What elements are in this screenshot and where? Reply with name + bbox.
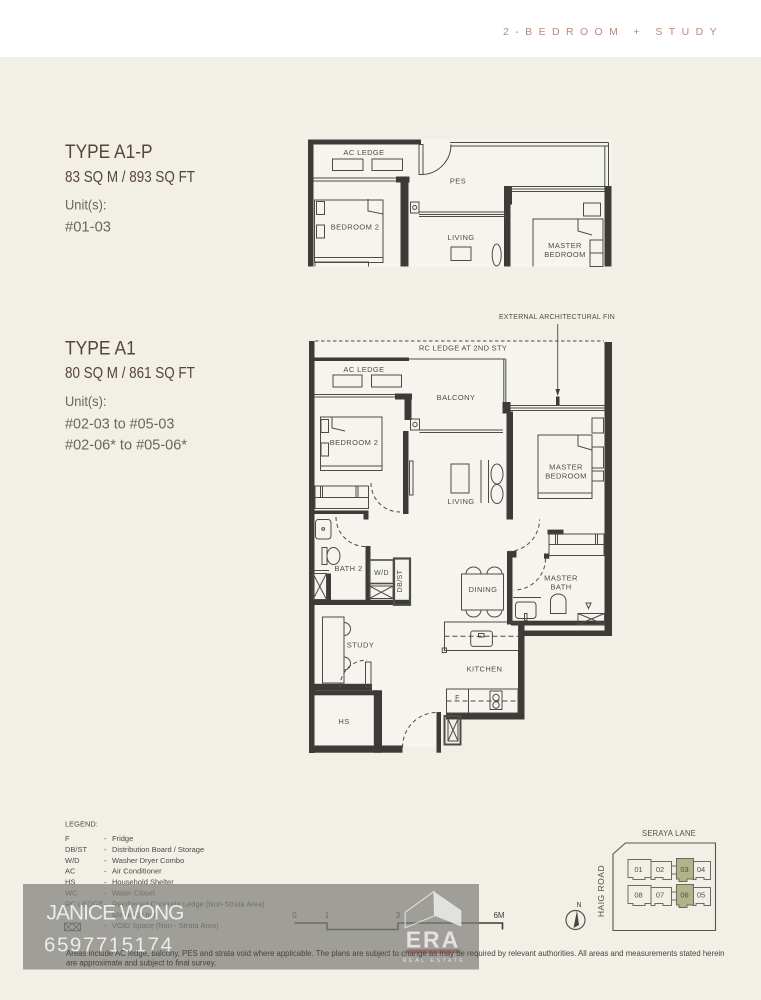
svg-text:MASTER: MASTER (544, 574, 578, 583)
svg-text:SERAYA LANE: SERAYA LANE (642, 828, 696, 838)
svg-text:-: - (104, 856, 107, 865)
svg-text:TYPE A1-P: TYPE A1-P (65, 141, 153, 163)
svg-text:DB/ST: DB/ST (65, 845, 88, 854)
svg-text:EXTERNAL ARCHITECTURAL FIN: EXTERNAL ARCHITECTURAL FIN (499, 312, 615, 321)
svg-text:BEDROOM: BEDROOM (544, 250, 586, 259)
svg-text:MASTER: MASTER (549, 463, 583, 472)
svg-text:LEGEND:: LEGEND: (65, 820, 98, 829)
svg-text:08: 08 (634, 891, 642, 900)
svg-text:AC: AC (65, 867, 76, 876)
svg-text:AC LEDGE: AC LEDGE (343, 148, 384, 157)
svg-text:BEDROOM 2: BEDROOM 2 (330, 438, 379, 447)
svg-text:07: 07 (656, 891, 664, 900)
svg-text:DB/ST: DB/ST (397, 569, 404, 592)
svg-text:04: 04 (697, 865, 705, 874)
svg-text:PES: PES (450, 177, 466, 186)
svg-text:02: 02 (656, 865, 664, 874)
svg-text:-: - (104, 867, 107, 876)
svg-text:-: - (104, 845, 107, 854)
svg-text:STUDY: STUDY (347, 641, 374, 650)
svg-text:HAIG ROAD: HAIG ROAD (596, 865, 606, 917)
svg-text:#01-03: #01-03 (65, 220, 111, 236)
svg-text:Washer Dryer Combo: Washer Dryer Combo (112, 856, 184, 865)
svg-text:BATH 2: BATH 2 (334, 564, 362, 573)
svg-text:Distribution Board / Storage: Distribution Board / Storage (112, 845, 204, 854)
svg-text:F: F (65, 834, 70, 843)
svg-text:RC LEDGE AT 2ND STY: RC LEDGE AT 2ND STY (419, 344, 507, 353)
svg-text:REAL ESTATE: REAL ESTATE (403, 958, 466, 964)
svg-text:LIVING: LIVING (448, 497, 475, 506)
svg-text:BEDROOM 2: BEDROOM 2 (331, 223, 380, 232)
svg-text:F: F (455, 695, 460, 702)
svg-text:BATH: BATH (550, 583, 571, 592)
svg-text:03: 03 (680, 865, 688, 874)
svg-text:-: - (104, 834, 107, 843)
svg-text:Unit(s):: Unit(s): (65, 393, 107, 409)
svg-text:BEDROOM: BEDROOM (545, 472, 587, 481)
svg-text:MASTER: MASTER (548, 241, 582, 250)
svg-text:06: 06 (680, 891, 688, 900)
svg-text:Unit(s):: Unit(s): (65, 197, 107, 213)
svg-text:W/D: W/D (65, 856, 80, 865)
svg-text:#02-06* to #05-06*: #02-06* to #05-06* (65, 438, 187, 454)
svg-text:01: 01 (634, 865, 642, 874)
svg-text:DINING: DINING (469, 585, 498, 594)
svg-text:W/D: W/D (374, 570, 389, 577)
svg-text:N: N (576, 902, 581, 909)
svg-text:JANICE WONG: JANICE WONG (47, 902, 185, 925)
svg-text:BALCONY: BALCONY (437, 393, 476, 402)
svg-text:6M: 6M (493, 911, 504, 920)
svg-text:#02-03 to #05-03: #02-03 to #05-03 (65, 417, 174, 433)
svg-text:LIVING: LIVING (448, 233, 475, 242)
svg-text:AC LEDGE: AC LEDGE (343, 365, 384, 374)
svg-text:KITCHEN: KITCHEN (467, 665, 503, 674)
svg-text:2-BEDROOM + STUDY: 2-BEDROOM + STUDY (503, 26, 723, 38)
svg-text:80 SQ M / 861 SQ FT: 80 SQ M / 861 SQ FT (65, 365, 195, 382)
svg-text:are approximate and subject to: are approximate and subject to final sur… (66, 959, 216, 968)
svg-text:83 SQ M / 893 SQ FT: 83 SQ M / 893 SQ FT (65, 169, 195, 186)
svg-text:TYPE A1: TYPE A1 (65, 338, 136, 360)
svg-text:05: 05 (697, 891, 705, 900)
svg-text:Fridge: Fridge (112, 834, 133, 843)
svg-text:Air Conditioner: Air Conditioner (112, 867, 162, 876)
svg-text:HS: HS (338, 717, 349, 726)
svg-text:Areas include AC ledge, balcon: Areas include AC ledge, balcony, PES and… (66, 949, 725, 958)
